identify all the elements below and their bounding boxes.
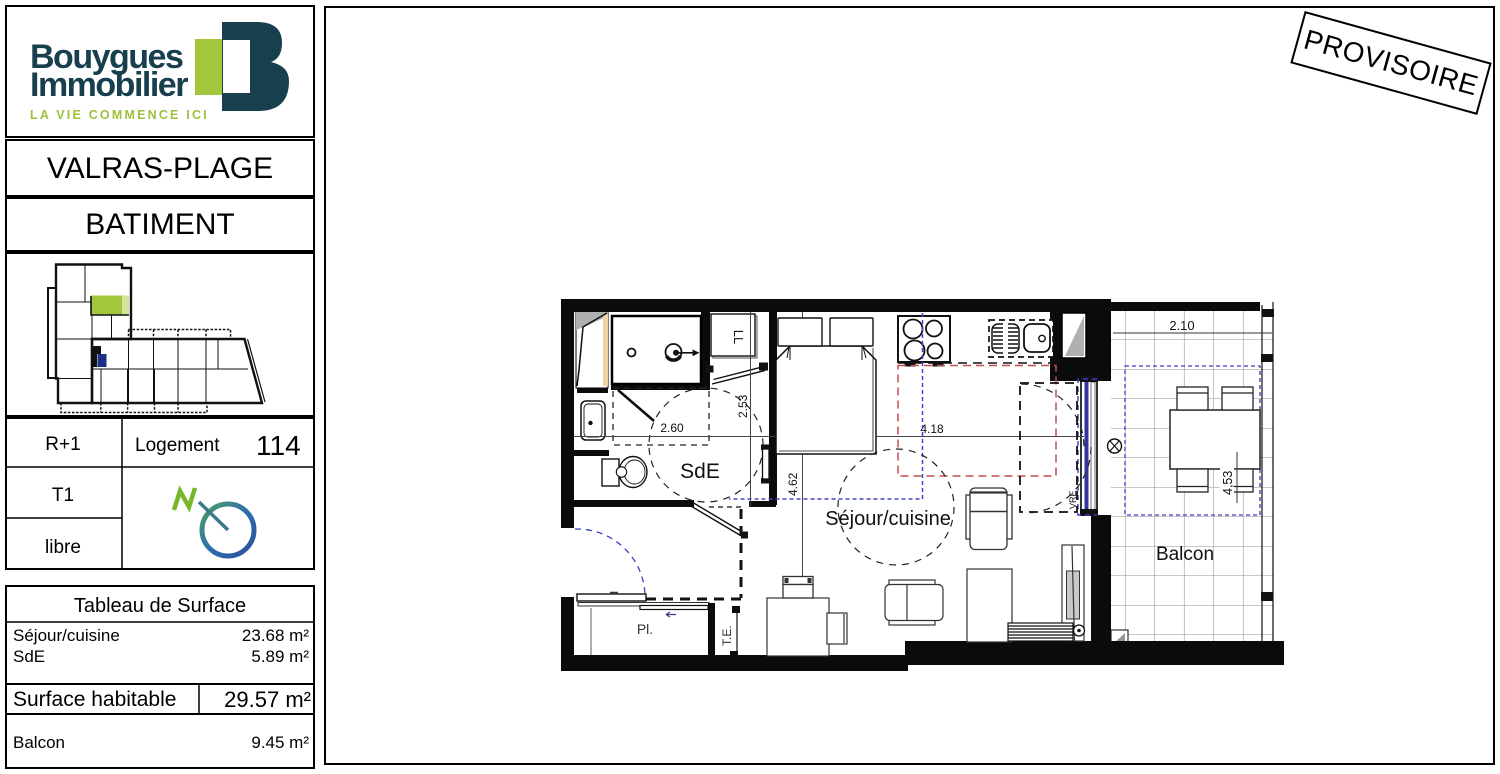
svg-text:VRE: VRE: [1068, 490, 1078, 509]
svg-text:4,53: 4,53: [1221, 471, 1235, 495]
svg-text:Balcon: Balcon: [13, 733, 65, 752]
svg-text:2.10: 2.10: [1169, 318, 1194, 333]
svg-text:Surface habitable: Surface habitable: [13, 688, 176, 711]
svg-text:Balcon: Balcon: [1156, 544, 1214, 565]
svg-text:T1: T1: [52, 485, 74, 506]
svg-text:SdE: SdE: [13, 647, 45, 666]
svg-text:SdE: SdE: [680, 460, 720, 483]
svg-text:23.68 m²: 23.68 m²: [242, 626, 309, 645]
svg-text:Séjour/cuisine: Séjour/cuisine: [13, 626, 120, 645]
svg-text:libre: libre: [45, 537, 81, 558]
svg-text:4.18: 4.18: [920, 422, 944, 436]
svg-text:LL: LL: [731, 330, 746, 344]
svg-text:29.57 m²: 29.57 m²: [224, 687, 311, 712]
svg-text:T.E.: T.E.: [720, 625, 734, 646]
svg-text:114: 114: [256, 430, 301, 461]
svg-text:2.60: 2.60: [660, 421, 684, 435]
svg-text:Tableau de Surface: Tableau de Surface: [74, 595, 246, 617]
svg-text:Logement: Logement: [135, 435, 220, 456]
svg-text:9.45 m²: 9.45 m²: [251, 733, 309, 752]
svg-text:Pl.: Pl.: [637, 621, 653, 637]
svg-text:LA VIE COMMENCE ICI: LA VIE COMMENCE ICI: [30, 108, 209, 122]
svg-text:5.89 m²: 5.89 m²: [251, 647, 309, 666]
svg-text:Immobilier: Immobilier: [30, 66, 188, 104]
svg-text:2.53: 2.53: [736, 394, 750, 418]
svg-text:R+1: R+1: [45, 434, 80, 455]
svg-text:4.62: 4.62: [786, 472, 800, 496]
svg-text:Séjour/cuisine: Séjour/cuisine: [825, 508, 951, 530]
